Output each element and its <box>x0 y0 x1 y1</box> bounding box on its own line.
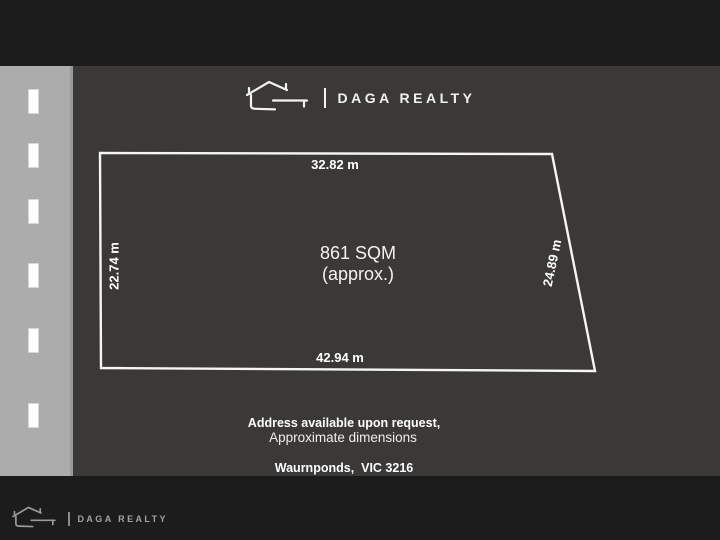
address-line2: Waurnponds, VIC 3216 <box>248 461 440 476</box>
footer-brand-name: DAGA REALTY <box>78 514 168 524</box>
house-logo-icon <box>11 503 57 535</box>
dimensions-note: Approximate dimensions <box>269 430 417 445</box>
footer-logo: DAGA REALTY <box>11 503 168 535</box>
address-block: Address available upon request, Waurnpon… <box>248 386 440 506</box>
dimension-left: 22.74 m <box>107 242 122 290</box>
lot-area-note: (approx.) <box>320 264 396 285</box>
dimension-top: 32.82 m <box>311 157 359 172</box>
flyer-canvas: DAGA REALTY 32.82 m 42.94 m 22.74 m 24.8… <box>0 0 720 540</box>
lot-area-value: 861 SQM <box>320 243 396 264</box>
dimension-bottom: 42.94 m <box>316 350 364 365</box>
address-line1: Address available upon request, <box>248 416 440 431</box>
logo-separator <box>68 512 70 526</box>
lot-area: 861 SQM (approx.) <box>320 243 396 285</box>
